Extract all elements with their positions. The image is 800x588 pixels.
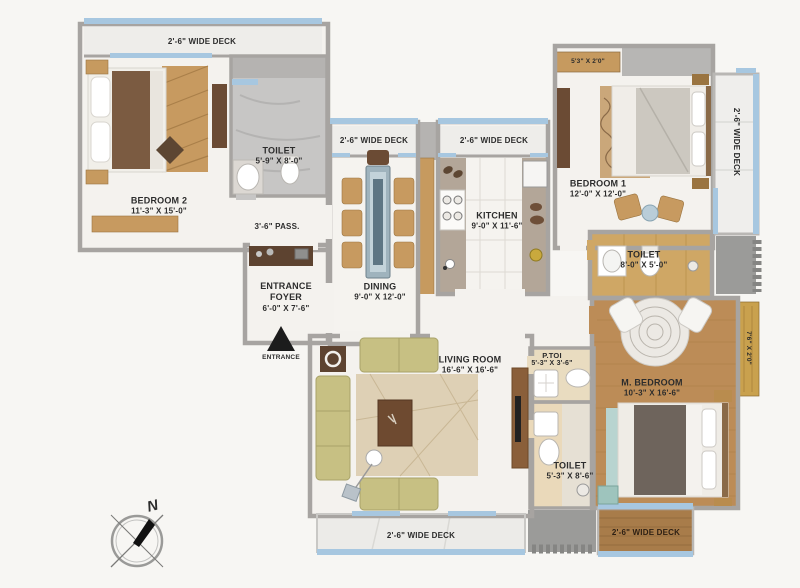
kettle — [446, 260, 455, 269]
burner-2 — [454, 196, 462, 204]
bed1-pillow-2 — [692, 132, 705, 166]
dining-deck-rail — [330, 118, 418, 124]
foyer-decor-1 — [256, 251, 262, 257]
bed2-blanket — [112, 71, 150, 169]
mbed-pillow-2 — [702, 451, 716, 489]
label-deck-right: 2'-6" WIDE DECK — [731, 108, 741, 176]
dining-kitchen-wall — [418, 158, 434, 304]
wood-deck-rail-bottom — [598, 551, 693, 557]
living-end-table — [320, 346, 346, 372]
toilet1-basin — [603, 250, 621, 272]
dining-table-runner — [373, 179, 383, 265]
label-toilet-bedroom1: TOILET 8'-0" X 5'-0" — [621, 249, 668, 270]
floor-lamp-head — [366, 450, 382, 466]
dining-deck-window-l — [332, 153, 350, 157]
mbed-nightstand-bottom — [714, 498, 732, 506]
bottom-deck-rail — [317, 549, 525, 555]
foyer-decor-2 — [267, 249, 274, 256]
dining-deck-window-r — [398, 153, 416, 157]
bed2-nightstand-top — [86, 60, 108, 74]
label-kitchen: KITCHEN 9'-0" X 11'-6" — [471, 210, 522, 231]
label-m-bedroom: M. BEDROOM 10'-3" X 16'-6" — [621, 377, 683, 398]
label-toilet-common: TOILET 5'-3" X 8'-6" — [547, 460, 594, 481]
label-deck-kitchen: 2'-6" WIDE DECK — [460, 136, 528, 146]
kitchen-stove — [440, 190, 465, 230]
opening-bedroom1 — [560, 242, 586, 251]
label-deck-dining: 2'-6" WIDE DECK — [340, 136, 408, 146]
kitchen-deck-rail — [438, 118, 548, 124]
label-entrance-foyer: ENTRANCE FOYER 6'-0" X 7'-6" — [249, 281, 323, 314]
toilet-common-shower — [577, 484, 589, 496]
bed2-pillow-1 — [91, 77, 110, 117]
label-deck-top: 2'-6" WIDE DECK — [168, 37, 236, 47]
tv-screen — [515, 396, 521, 442]
compass — [111, 515, 163, 567]
label-dining: DINING 9'-0" X 12'-0" — [354, 281, 406, 302]
mbed-blanket — [634, 405, 686, 495]
label-living-room: LIVING ROOM 16'-6" X 16'-6" — [439, 354, 502, 375]
label-passage: 3'-6" PASS. — [254, 222, 299, 232]
burner-4 — [454, 212, 462, 220]
topright-window — [736, 68, 756, 73]
fruit-bowl — [530, 249, 542, 261]
compass-needle — [133, 519, 155, 547]
right-deck-rail — [753, 74, 759, 234]
dining-chair-l2 — [342, 210, 362, 236]
opening-mbedroom — [589, 306, 597, 334]
mbed-headboard — [722, 403, 728, 497]
bed2-pillow-2 — [91, 122, 110, 162]
sink-item-1 — [530, 203, 542, 211]
label-p-toi: P.TOI 5'-3" X 3'-6" — [531, 351, 572, 369]
label-entrance: ENTRANCE — [262, 354, 300, 362]
kitchen-deck-window-r — [530, 153, 548, 157]
mbedroom-cabinet — [598, 486, 618, 504]
bedroom1-wardrobe — [557, 88, 570, 168]
mbed-pillow-1 — [702, 409, 716, 447]
bedroom1-side-table — [642, 205, 658, 221]
label-bedroom2: BEDROOM 2 11'-3" X 15'-0" — [131, 195, 187, 216]
opening-bedroom2 — [324, 205, 332, 239]
mbed-nightstand-top — [714, 390, 732, 402]
label-bedroom1: BEDROOM 1 12'-0" X 12'-0" — [570, 178, 626, 199]
burner-1 — [443, 196, 451, 204]
bed1-headboard — [706, 86, 711, 176]
toilet1-shower — [688, 261, 698, 271]
dining-chair-l1 — [342, 178, 362, 204]
kettle-dot — [443, 266, 447, 270]
top-deck-window — [110, 53, 212, 58]
bed1-nightstand-bottom — [692, 178, 709, 189]
top-deck-rail — [84, 18, 322, 24]
label-deck-bottom-right: 2'-6" WIDE DECK — [612, 528, 680, 538]
kitchen-fridge — [523, 161, 547, 187]
dining-chair-r3 — [394, 242, 414, 268]
corridor2-floor — [528, 296, 592, 350]
bedroom2-wardrobe — [212, 84, 227, 148]
right-deck-window — [713, 188, 718, 234]
burner-3 — [443, 212, 451, 220]
sink-item-2 — [530, 216, 544, 225]
service-pad-right — [716, 236, 756, 294]
bedroom1-top-gray — [622, 44, 713, 76]
dining-chair-r1 — [394, 178, 414, 204]
label-deck-bottom: 2'-6" WIDE DECK — [387, 531, 455, 541]
ptoi-wc — [566, 369, 590, 387]
toilet2-upper-band — [231, 56, 327, 80]
bottom-deck-window-r — [448, 511, 496, 516]
bed2-nightstand-bottom — [86, 170, 108, 184]
living-sofa-left — [316, 376, 350, 480]
toilet-common-basin — [534, 412, 558, 436]
dining-chair-r2 — [394, 210, 414, 236]
opening-toilet1 — [587, 240, 595, 260]
label-toilet-bedroom2: TOILET 5'-9" X 8'-0" — [256, 145, 303, 166]
kitchen-deck-window-l — [438, 153, 456, 157]
opening-foyer-living — [325, 283, 334, 333]
foyer-decor-3 — [295, 249, 308, 259]
floor-plan: 2'-6" WIDE DECK TOILET 5'-9" X 8'-0" BED… — [0, 0, 800, 588]
bedroom2-bench — [92, 216, 178, 232]
bed1-pillow-1 — [692, 92, 705, 126]
toilet2-basin — [237, 164, 259, 190]
dining-chair-top — [367, 150, 389, 165]
toilet2-window — [232, 79, 258, 85]
bottom-deck-window-l — [352, 511, 400, 516]
opening-kitchen-corridor — [455, 289, 525, 298]
mbed-sheet — [686, 405, 702, 495]
label-m-bedroom-ledge: 7'6" X 2'0" — [744, 331, 752, 365]
label-bedroom1-ledge: 5'3" X 2'0" — [571, 58, 605, 66]
dining-chair-l3 — [342, 242, 362, 268]
opening-corridor-living — [430, 331, 525, 340]
bed1-nightstand-top — [692, 74, 709, 85]
